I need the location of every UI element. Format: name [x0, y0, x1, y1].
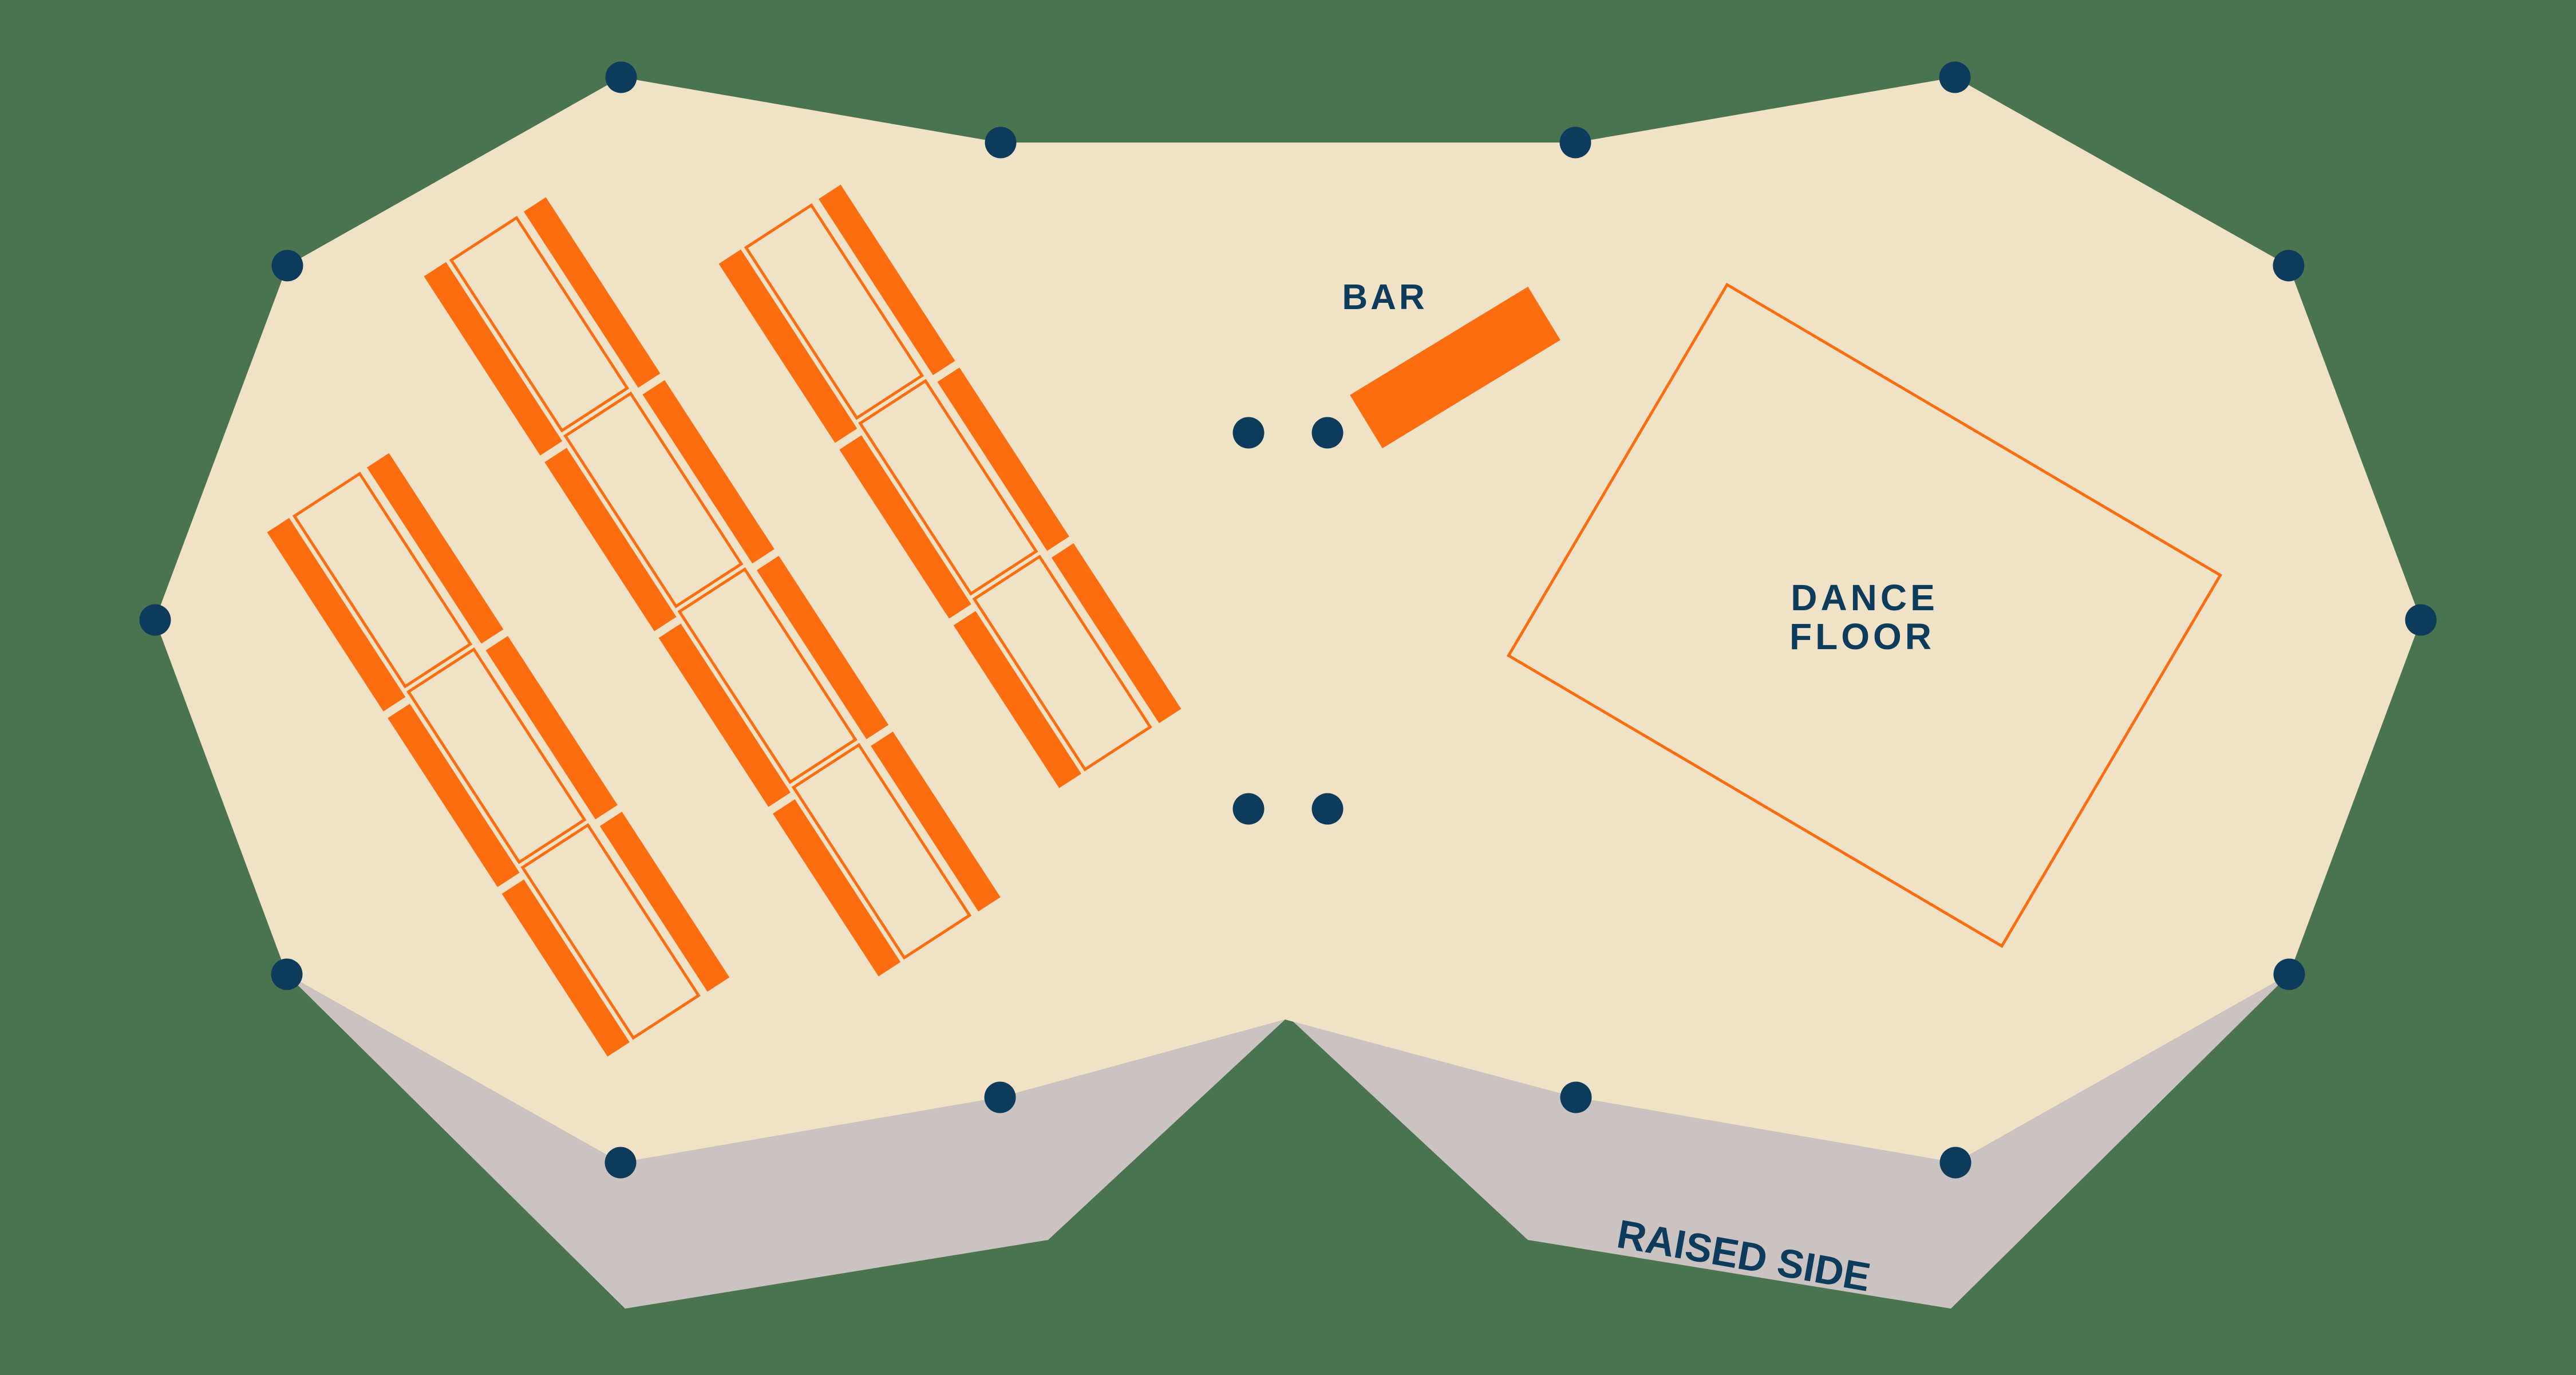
- svg-text:BAR: BAR: [1342, 278, 1427, 317]
- svg-text:DANCE: DANCE: [1791, 577, 1938, 618]
- svg-text:FLOOR: FLOOR: [1789, 616, 1935, 657]
